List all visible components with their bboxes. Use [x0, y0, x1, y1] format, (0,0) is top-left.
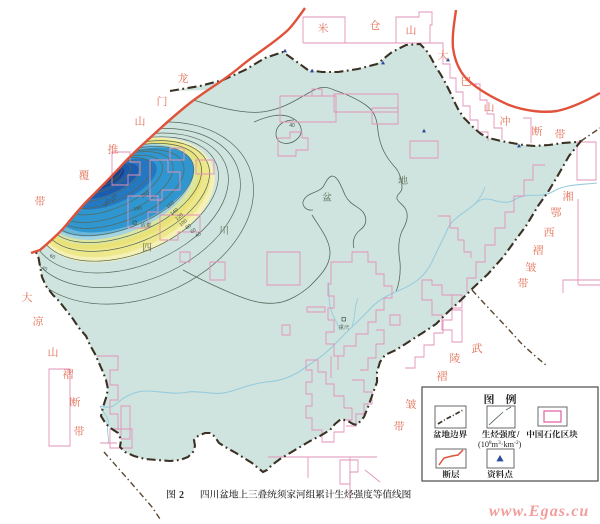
- svg-text:2: 2: [179, 490, 184, 501]
- svg-text:40: 40: [289, 123, 295, 129]
- svg-text:www.Egas.cu: www.Egas.cu: [489, 503, 589, 520]
